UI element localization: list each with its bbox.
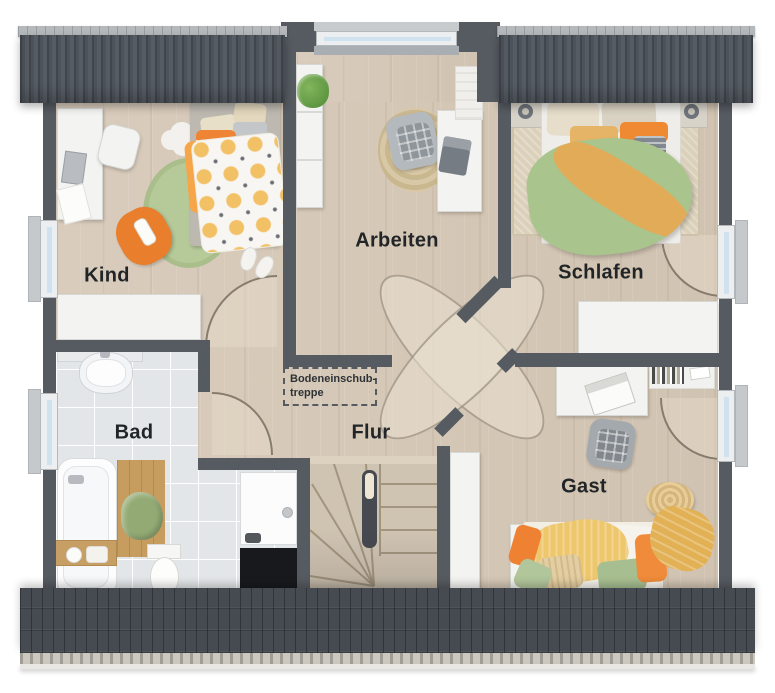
room-label-flur: Flur: [352, 422, 391, 445]
bad-tub-tray: [55, 540, 117, 566]
roof-bottom-eave: [20, 653, 755, 664]
kind-desk-laptop: [61, 151, 87, 186]
sill-schlafen-right: [735, 220, 748, 304]
schlafen-lamp-left: [518, 104, 533, 119]
window-schlafen-right: [717, 225, 735, 299]
attic-hatch-annotation: Bodeneinschub- treppe: [283, 367, 377, 406]
wall-kind-arbeiten: [283, 98, 296, 367]
schlafen-lamp-right: [684, 104, 699, 119]
bad-sink: [79, 352, 133, 394]
room-label-schlafen: Schlafen: [558, 262, 644, 285]
tray-candle-1: [66, 547, 82, 563]
bathtub-faucet: [68, 475, 84, 484]
roof-bottom: [20, 588, 755, 653]
bad-bathtub: [57, 458, 117, 598]
staircase: [310, 456, 437, 600]
wall-arbeiten-bottom: [296, 355, 392, 367]
room-label-arbeiten: Arbeiten: [355, 230, 439, 253]
arbeiten-plant: [297, 74, 329, 108]
shower-tray: [240, 472, 297, 545]
room-label-kind: Kind: [84, 265, 130, 288]
attic-hatch-line1: Bodeneinschub-: [290, 372, 370, 386]
kind-duvet: [190, 132, 289, 255]
wall-arbeiten-schlafen: [498, 98, 511, 288]
gast-chair-pillow: [594, 428, 630, 464]
room-label-bad: Bad: [115, 422, 154, 445]
dormer-sill: [314, 46, 459, 55]
attic-hatch-line2: treppe: [290, 386, 370, 400]
room-label-gast: Gast: [561, 476, 607, 499]
wall-outer-left: [43, 88, 56, 600]
bathtub-inner: [63, 466, 109, 588]
arbeiten-chair-pillow: [395, 121, 436, 163]
roof-bottom-gutter: [20, 664, 755, 669]
sill-gast-right: [735, 385, 748, 467]
window-arbeiten-dormer: [316, 31, 457, 46]
wall-outer-right: [719, 88, 732, 600]
wall-stair-right: [437, 446, 450, 600]
wall-kind-bottom: [56, 340, 206, 352]
wall-bad-right: [198, 340, 210, 392]
window-gast-right: [717, 390, 735, 462]
window-kind-left: [40, 220, 58, 298]
window-bad-left: [40, 393, 58, 470]
shower-drain: [282, 507, 293, 518]
shower-fixture: [245, 533, 261, 543]
kind-sideboard: [57, 294, 201, 340]
wall-shower-stairs: [297, 458, 310, 600]
schlafen-dresser: [578, 301, 718, 354]
roof-top-left: [20, 35, 285, 103]
bad-green-towel: [121, 492, 163, 540]
flur-wardrobe: [450, 452, 480, 592]
gast-shelf-books: [652, 366, 684, 384]
floor-plan: Kind Arbeiten Schlafen Bad Flur Gast Bod…: [0, 0, 775, 693]
tray-candle-2: [86, 546, 108, 563]
wall-shower-top: [198, 458, 310, 470]
dormer-eave: [314, 22, 459, 31]
roof-top-right: [499, 35, 753, 103]
wall-schlafen-gast: [515, 353, 719, 367]
